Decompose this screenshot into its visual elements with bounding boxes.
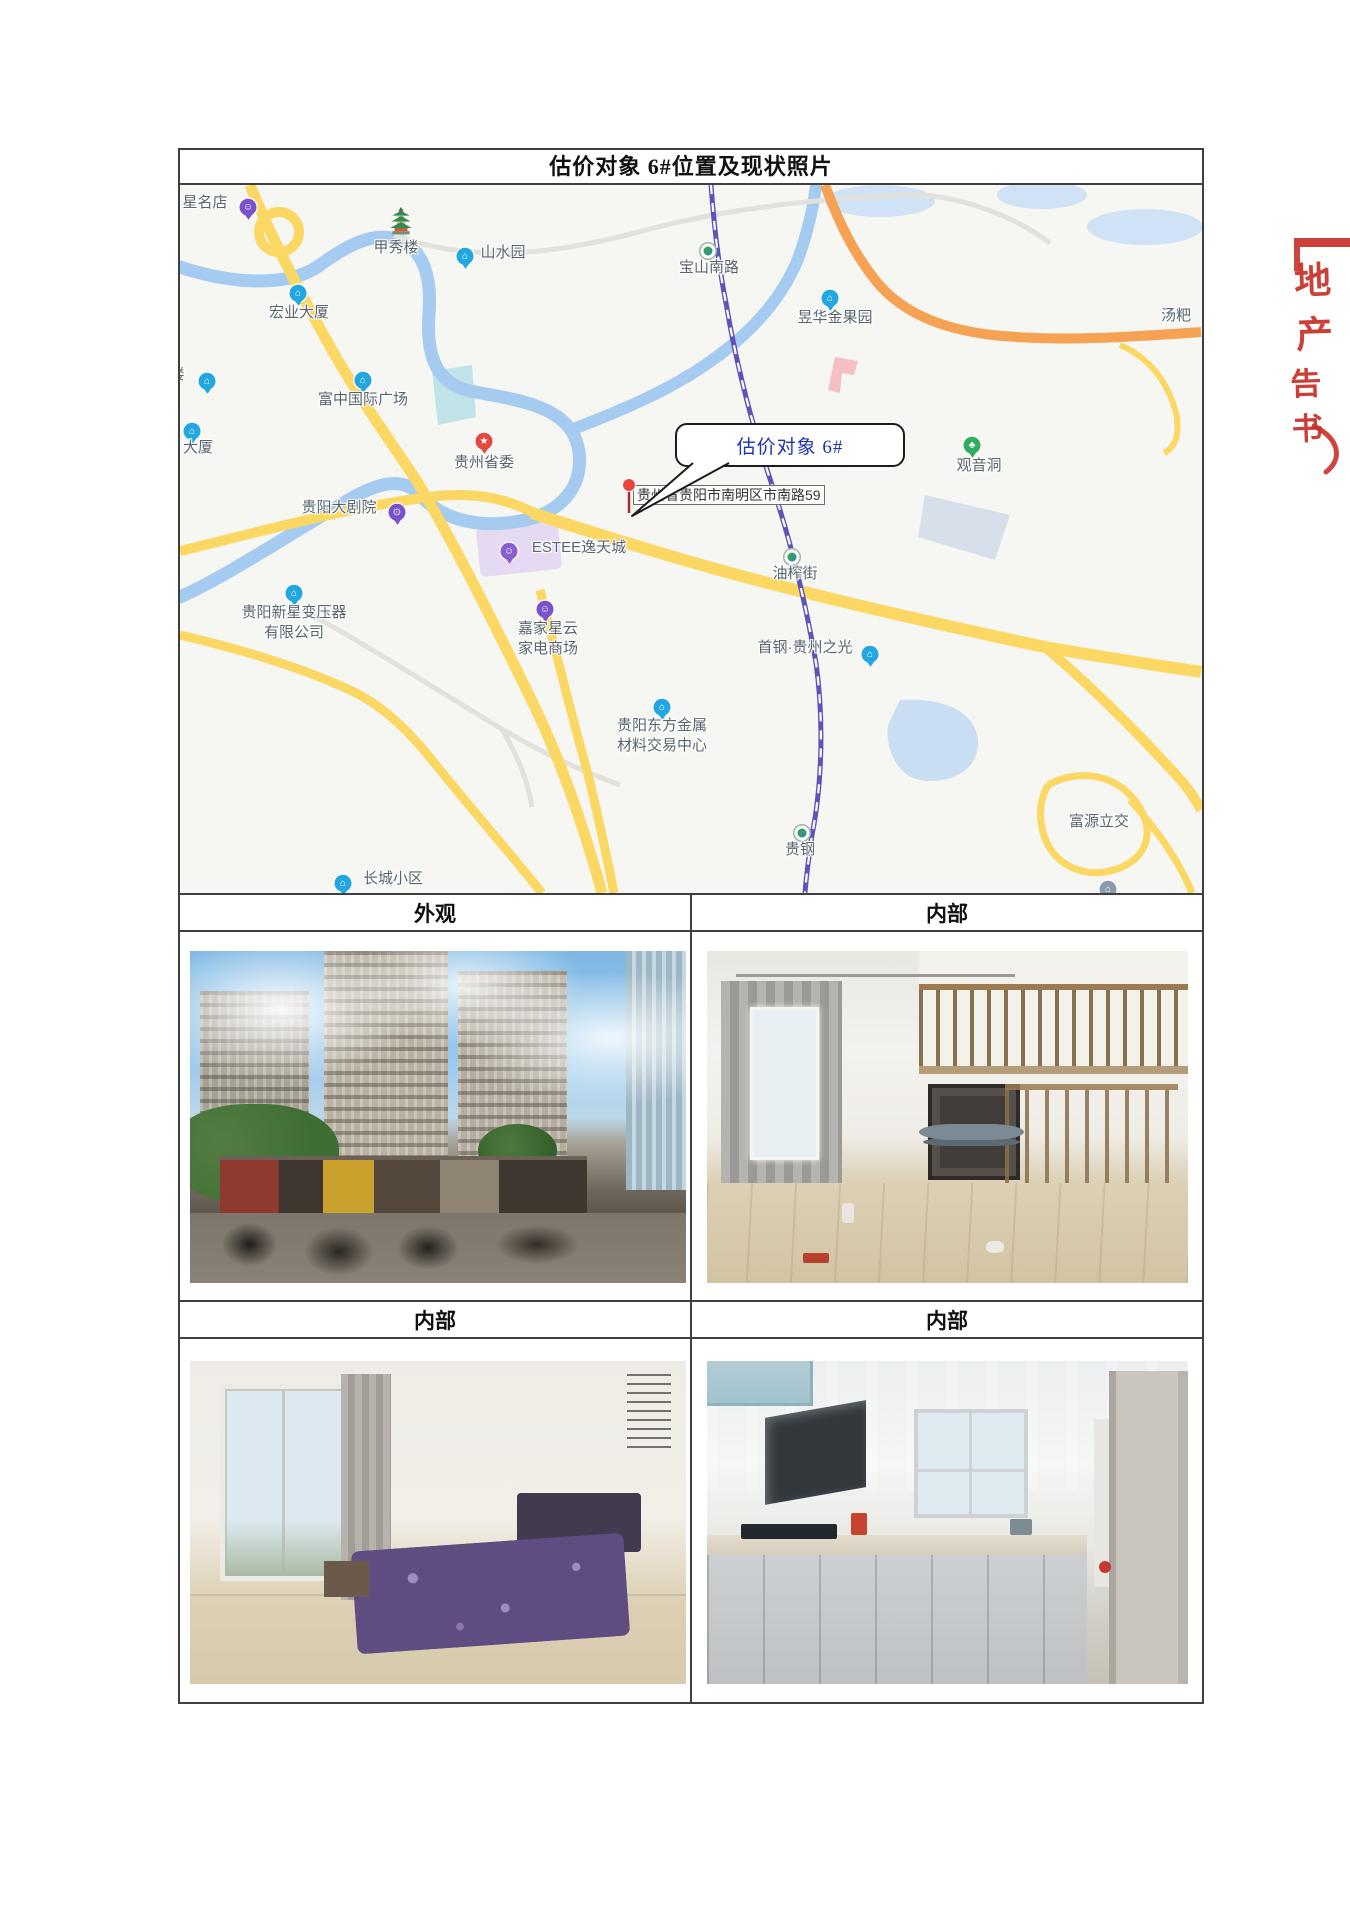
photo-cell-interior-2 [180, 1339, 690, 1702]
bright-window [750, 1007, 819, 1159]
location-map: 贵州省贵阳市南明区市南路59 估价对象 6# ☺星名店甲秀楼⌂山水园宝山南路⌂宏… [180, 185, 1202, 895]
photo-cell-interior-1 [690, 932, 1202, 1300]
wall-rack [627, 1374, 672, 1452]
callout-tail-and-pin [180, 185, 1202, 893]
section-header-row-2: 内部 内部 [180, 1302, 1202, 1339]
header-interior-1: 内部 [690, 895, 1202, 930]
photo-location-table: 估价对象 6#位置及现状照片 [178, 148, 1204, 1704]
nightstand [324, 1561, 369, 1597]
page-title: 估价对象 6#位置及现状照片 [180, 150, 1202, 185]
location-pin-icon [623, 479, 636, 492]
counter-item-red [851, 1513, 867, 1535]
street-level [190, 1213, 686, 1283]
wood-floor [707, 1183, 1188, 1283]
window-bar-v [969, 1413, 972, 1513]
photo-cell-interior-3 [690, 1339, 1202, 1702]
debris-bag [986, 1241, 1004, 1253]
bedroom-window [220, 1384, 354, 1581]
report-page: 估价对象 6#位置及现状照片 [0, 0, 1350, 1909]
window-bar-h [918, 1469, 1024, 1472]
callout-tail [632, 463, 729, 516]
photo-kitchen [707, 1361, 1188, 1684]
lower-cabinets [707, 1555, 1087, 1684]
header-interior-3: 内部 [690, 1302, 1202, 1337]
counter-item-gray [1010, 1519, 1032, 1535]
ceiling-track [736, 974, 1015, 977]
photo-row-2 [180, 1339, 1202, 1702]
table-object [919, 1124, 1025, 1141]
section-header-row-1: 外观 内部 [180, 895, 1202, 932]
debris-red-box [803, 1253, 829, 1263]
range-hood [765, 1401, 866, 1506]
seal-arc-fragment [1306, 420, 1350, 478]
cooktop [741, 1524, 837, 1539]
wood-railing [919, 984, 1188, 1074]
header-interior-2: 内部 [180, 1302, 690, 1337]
debris-bottle [842, 1203, 854, 1223]
photo-row-1 [180, 932, 1202, 1302]
seal-text-top: 地产 [1293, 249, 1350, 359]
photo-cell-exterior [180, 932, 690, 1300]
photo-bedroom [190, 1361, 686, 1684]
header-exterior: 外观 [180, 895, 690, 930]
storefronts [220, 1160, 587, 1216]
upper-cabinet [707, 1361, 813, 1406]
kitchen-window [914, 1409, 1028, 1517]
purple-bed [350, 1532, 629, 1654]
stair-railing [1005, 1084, 1178, 1196]
photo-exterior-building [190, 951, 686, 1283]
photo-interior-loft [707, 951, 1188, 1283]
kitchen-door-frame [1109, 1371, 1188, 1684]
seal-border-fragment [1294, 238, 1350, 247]
mezzanine-wall [919, 951, 1188, 1074]
